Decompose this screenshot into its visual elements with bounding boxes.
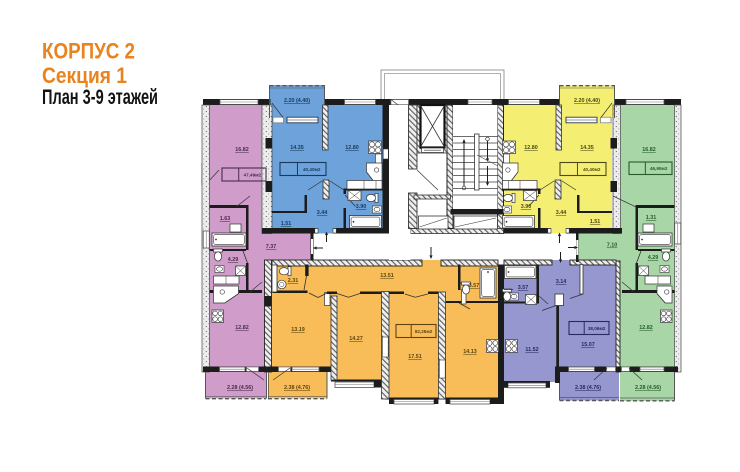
svg-text:2.20 (4.40): 2.20 (4.40) — [284, 98, 310, 104]
svg-text:16.82: 16.82 — [235, 147, 249, 153]
svg-text:13.19: 13.19 — [291, 327, 305, 333]
svg-text:Секция 1: Секция 1 — [42, 63, 127, 88]
svg-text:КОРПУС 2: КОРПУС 2 — [42, 39, 135, 64]
svg-text:1.31: 1.31 — [646, 215, 657, 221]
svg-text:14.27: 14.27 — [349, 336, 363, 342]
svg-text:2.28 (4.56): 2.28 (4.56) — [227, 385, 253, 391]
svg-text:7.10: 7.10 — [607, 243, 618, 249]
svg-text:14.35: 14.35 — [580, 145, 594, 151]
svg-text:16.82: 16.82 — [642, 147, 656, 153]
svg-text:2.20 (4.40): 2.20 (4.40) — [574, 98, 600, 104]
svg-text:40,40м2: 40,40м2 — [583, 167, 601, 172]
svg-text:План 3-9 этажей: План 3-9 этажей — [42, 86, 158, 109]
svg-text:2.31: 2.31 — [288, 278, 299, 284]
svg-text:7.37: 7.37 — [266, 244, 277, 250]
svg-text:13.51: 13.51 — [380, 273, 394, 279]
svg-text:2.38 (4.76): 2.38 (4.76) — [284, 385, 310, 391]
svg-text:12.82: 12.82 — [639, 325, 653, 331]
svg-text:1.51: 1.51 — [281, 221, 292, 227]
svg-text:47,49м2: 47,49м2 — [244, 172, 262, 177]
svg-text:3.90: 3.90 — [356, 204, 367, 210]
svg-text:11.52: 11.52 — [525, 347, 538, 353]
svg-text:2.38 (4.76): 2.38 (4.76) — [575, 385, 601, 391]
svg-text:40,40м2: 40,40м2 — [303, 167, 321, 172]
svg-text:12.82: 12.82 — [235, 325, 249, 331]
svg-text:12.80: 12.80 — [345, 145, 359, 151]
svg-text:3.57: 3.57 — [518, 285, 529, 291]
svg-text:14.35: 14.35 — [290, 145, 304, 151]
svg-text:46,90м2: 46,90м2 — [650, 166, 668, 171]
svg-text:3.44: 3.44 — [556, 210, 567, 216]
svg-text:82,25м2: 82,25м2 — [415, 329, 433, 334]
svg-text:3.14: 3.14 — [556, 279, 567, 285]
svg-text:3.44: 3.44 — [317, 210, 328, 216]
svg-text:2.28 (4.56): 2.28 (4.56) — [635, 385, 661, 391]
svg-text:38,06м2: 38,06м2 — [588, 326, 606, 331]
svg-text:1.63: 1.63 — [220, 216, 231, 222]
svg-text:4.29: 4.29 — [648, 255, 659, 261]
svg-text:3.57: 3.57 — [469, 283, 480, 289]
svg-text:12.80: 12.80 — [524, 145, 538, 151]
svg-text:17.51: 17.51 — [408, 354, 422, 360]
svg-text:1.51: 1.51 — [590, 219, 601, 225]
svg-text:3.90: 3.90 — [521, 204, 532, 210]
svg-text:14.13: 14.13 — [463, 349, 477, 355]
svg-text:4.29: 4.29 — [228, 257, 239, 263]
svg-text:15.07: 15.07 — [581, 342, 595, 348]
